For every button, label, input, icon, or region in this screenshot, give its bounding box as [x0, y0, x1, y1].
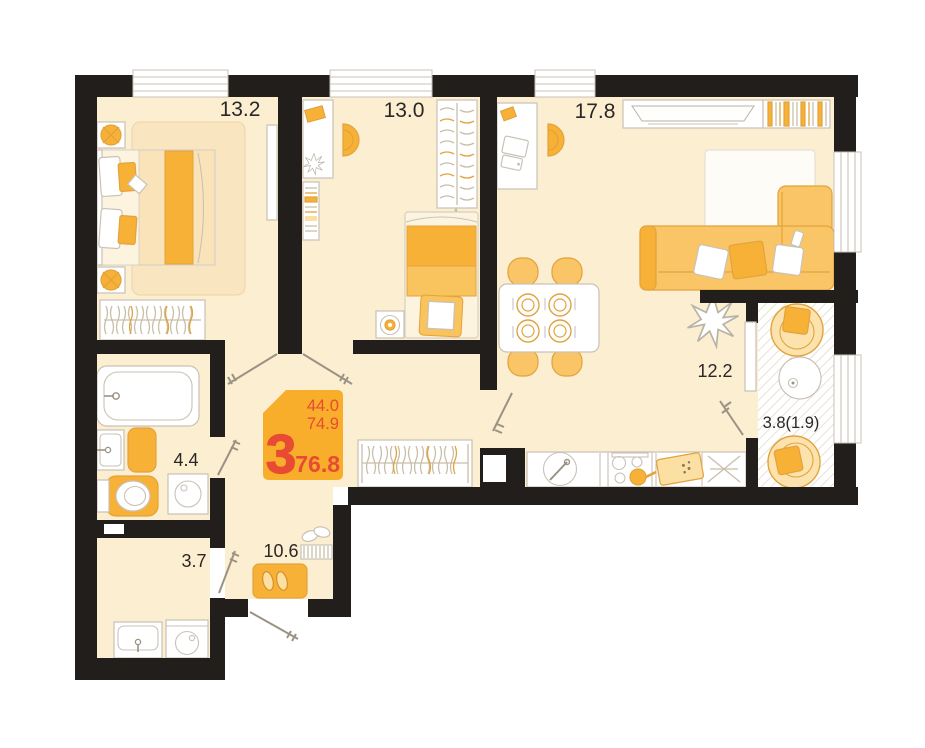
pillow	[729, 241, 767, 279]
badge-area-line1: 44.0	[307, 397, 339, 415]
sink-icon	[114, 622, 162, 658]
wall-bottom-main	[348, 487, 858, 505]
wall-corridor-top	[278, 340, 302, 354]
entrance-opening	[248, 599, 308, 617]
wall-living-balcony	[700, 290, 858, 303]
pillow	[772, 244, 804, 276]
living-room-area-label: 17.8	[575, 100, 616, 123]
wall-corridor-top	[75, 340, 225, 354]
wall-hall-bottom	[308, 599, 351, 617]
wc-area-label: 3.7	[181, 551, 206, 571]
toilet-icon	[97, 476, 158, 516]
badge-rooms-count: 3	[266, 423, 297, 485]
wall-niche	[483, 455, 506, 482]
book-shelf-icon	[303, 182, 319, 240]
window-balcony-icon	[834, 355, 861, 443]
bathtub-icon	[97, 366, 199, 426]
wall-divider-left	[210, 340, 225, 437]
armchair-bottom-icon	[768, 436, 820, 488]
plate-icon	[549, 294, 571, 316]
child-room-area-label: 13.0	[384, 99, 425, 122]
window-living-top-icon	[535, 70, 595, 97]
nightstand-top	[97, 122, 125, 148]
wall-corridor-top	[353, 340, 497, 354]
floorplan-page: 13.2	[0, 0, 925, 748]
wall-kitchen-balcony	[746, 303, 758, 323]
bathroom-area-label: 4.4	[173, 450, 198, 470]
washing-machine-icon	[168, 474, 208, 514]
kitchen-area-label: 12.2	[697, 361, 732, 381]
armchair-top-icon	[771, 304, 823, 356]
dining-chair-icon	[508, 258, 538, 286]
kitchen-counter	[527, 452, 746, 487]
dining-table-icon	[499, 284, 599, 352]
double-bed-icon	[97, 150, 215, 265]
nightstand-bottom	[97, 267, 125, 293]
dining-chair-icon	[552, 258, 582, 286]
mirror-icon	[267, 125, 277, 220]
hall-wardrobe-icon	[358, 440, 472, 487]
bedside-unit-icon	[376, 311, 404, 338]
pillow	[782, 306, 810, 334]
balcony-area-label: 3.8(1.9)	[763, 414, 820, 432]
apartment-badge: 44.0 74.9 3 76.8	[263, 390, 343, 485]
wall-divider-left	[210, 478, 225, 548]
badge-area-line2: 74.9	[307, 415, 339, 433]
plate-icon	[517, 320, 539, 342]
tv-console	[623, 100, 763, 128]
wall-kitchen-balcony	[746, 438, 758, 487]
wall-divider-left	[210, 598, 225, 680]
window-bedroom-icon	[133, 70, 228, 97]
bedroom-wardrobe-icon	[100, 300, 205, 340]
window-child-room-icon	[330, 70, 432, 97]
wall-hall-bottom	[225, 599, 248, 617]
window-living-right-icon	[834, 152, 861, 252]
washer-icon	[166, 620, 208, 658]
hallway-area-label: 10.6	[263, 541, 298, 561]
desk-icon	[303, 100, 333, 178]
plate-icon	[549, 320, 571, 342]
plate-icon	[517, 294, 539, 316]
wall-room-divider	[278, 97, 302, 340]
shoe-mat-icon	[253, 564, 307, 598]
wardrobe-icon	[437, 100, 477, 208]
wall-bottom-left	[75, 658, 225, 680]
pan-icon	[630, 469, 646, 485]
pillow	[693, 244, 729, 280]
washbasin-icon	[97, 430, 124, 470]
floorplan-svg: 13.2	[0, 0, 925, 748]
wall-left	[75, 75, 97, 680]
bedroom-area-label: 13.2	[220, 98, 261, 121]
single-bed-icon	[405, 212, 478, 338]
wall-niche	[104, 524, 124, 534]
badge-total-area: 76.8	[295, 451, 340, 477]
desk-icon	[497, 103, 537, 189]
media-shelf-icon	[763, 100, 830, 128]
pillow	[774, 446, 804, 476]
balcony-table-icon	[779, 357, 821, 399]
cabinet-icon	[128, 428, 156, 472]
tv-icon	[632, 106, 754, 121]
wall-living-divider	[480, 97, 497, 390]
